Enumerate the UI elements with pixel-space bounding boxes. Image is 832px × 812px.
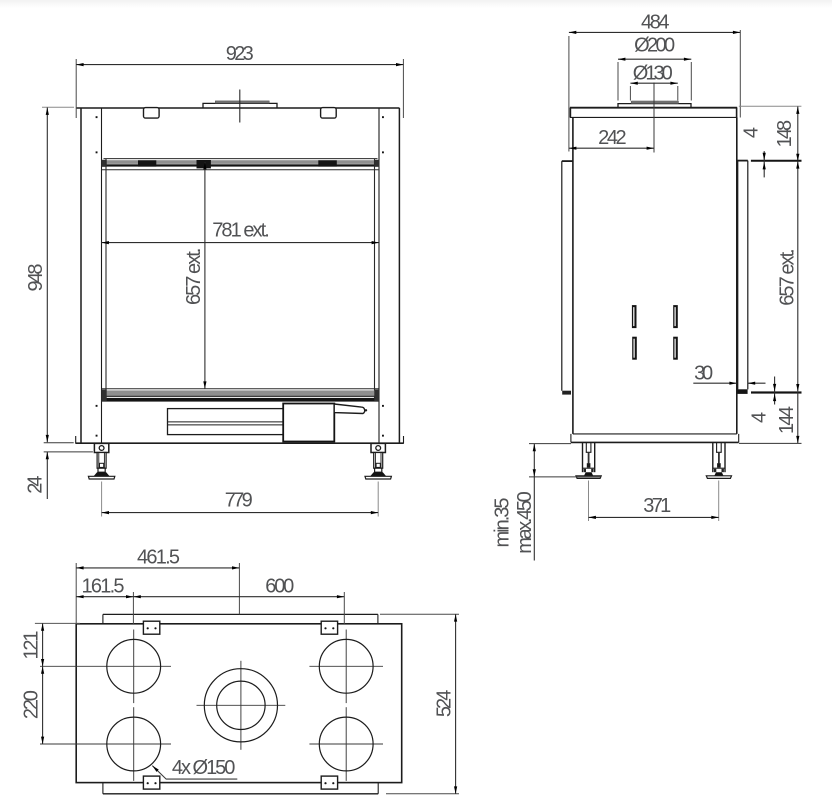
- svg-text:4: 4: [741, 127, 763, 138]
- svg-text:657 ext.: 657 ext.: [183, 248, 205, 306]
- svg-text:4: 4: [749, 412, 771, 423]
- svg-text:144: 144: [776, 406, 798, 434]
- svg-text:min.35: min.35: [492, 498, 514, 548]
- svg-text:948: 948: [25, 264, 47, 292]
- svg-text:484: 484: [641, 12, 670, 34]
- svg-text:148: 148: [774, 120, 796, 148]
- svg-text:Ø200: Ø200: [634, 35, 675, 57]
- svg-text:779: 779: [225, 490, 253, 512]
- svg-text:4x Ø150: 4x Ø150: [172, 757, 236, 779]
- svg-text:242: 242: [598, 127, 627, 149]
- svg-text:461.5: 461.5: [137, 547, 180, 569]
- svg-text:161.5: 161.5: [82, 576, 125, 598]
- svg-text:600: 600: [265, 576, 294, 598]
- svg-text:24: 24: [25, 475, 47, 493]
- svg-text:30: 30: [694, 363, 713, 385]
- svg-text:220: 220: [21, 690, 43, 719]
- svg-text:Ø130: Ø130: [633, 62, 673, 84]
- svg-text:923: 923: [226, 43, 254, 65]
- svg-text:524: 524: [434, 690, 456, 718]
- svg-text:121: 121: [21, 631, 43, 660]
- svg-text:781 ext.: 781 ext.: [212, 220, 270, 242]
- svg-text:657 ext.: 657 ext.: [777, 248, 799, 306]
- svg-text:371: 371: [643, 495, 671, 517]
- svg-text:max.450: max.450: [514, 491, 536, 554]
